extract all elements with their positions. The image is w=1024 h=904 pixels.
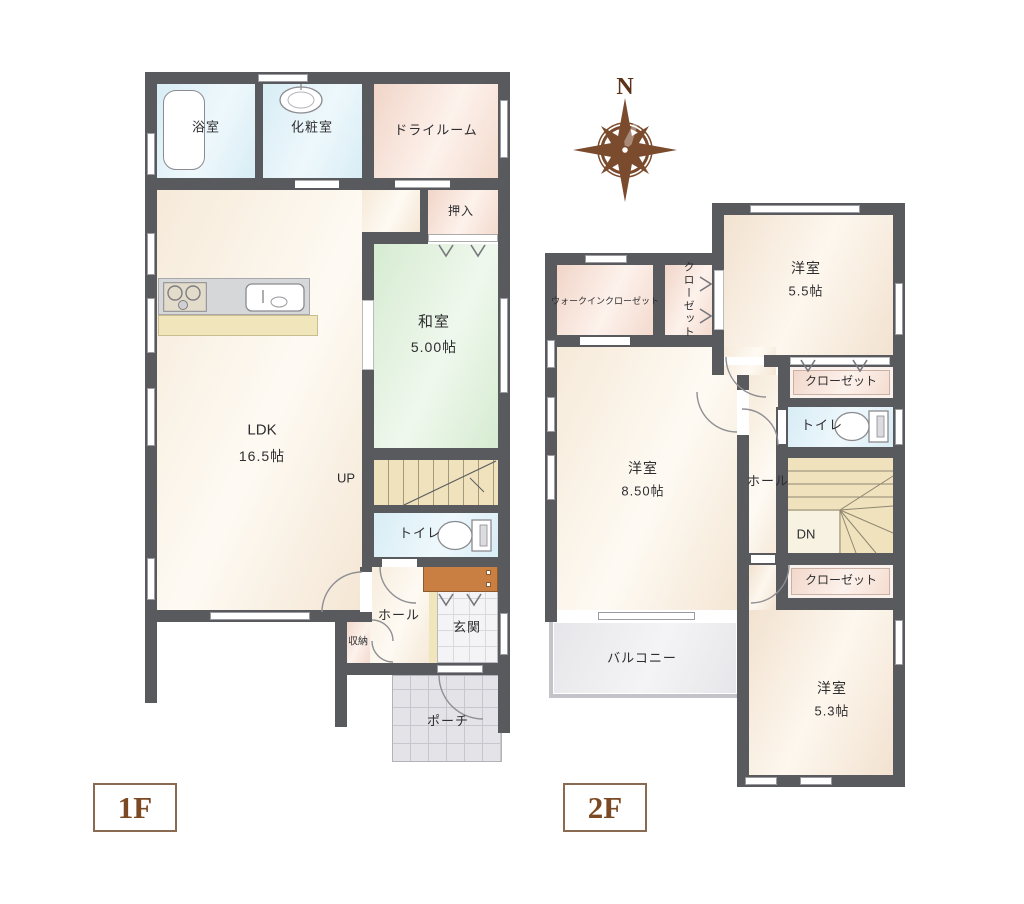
- sliding-door: [395, 180, 450, 188]
- wall-segment: [362, 505, 498, 513]
- room-size-bedroom1: 5.5帖: [788, 284, 823, 301]
- room-bedroom2: [557, 347, 737, 610]
- hanger-icon: [466, 594, 482, 606]
- wall-segment: [157, 178, 374, 190]
- shoji-door: [362, 300, 374, 370]
- window: [147, 558, 155, 600]
- washbasin-icon: [278, 80, 324, 116]
- room-label-ldk: LDK: [247, 420, 276, 440]
- door-arc: [726, 357, 766, 397]
- wall-segment: [776, 458, 788, 553]
- room-label-closet-c: クローゼット: [805, 573, 877, 589]
- cabinet-handle: [486, 582, 491, 587]
- room-label-hall-1f: ホール: [378, 608, 420, 625]
- hanger-icon: [438, 245, 454, 257]
- room-label-closet-b: クローゼット: [805, 374, 877, 390]
- door-arc: [697, 392, 737, 432]
- room-label-hall-2f: ホール: [747, 474, 789, 491]
- room-label-dryroom: ドライルーム: [394, 123, 478, 140]
- balcony-window: [598, 612, 695, 620]
- balcony-label: バルコニー: [607, 651, 677, 668]
- door-arc: [439, 675, 483, 719]
- window: [500, 613, 508, 655]
- room-label-wic: ウォークインクローゼット: [551, 296, 659, 308]
- room-size-ldk: 16.5帖: [239, 447, 285, 465]
- floorplan-canvas: N: [0, 0, 1024, 904]
- wall-segment: [778, 398, 905, 407]
- room-size-bedroom2: 8.50帖: [621, 484, 664, 501]
- window: [800, 777, 832, 785]
- room-label-toilet-1f: トイレ: [399, 526, 441, 543]
- window: [210, 612, 310, 620]
- wall-segment: [255, 84, 263, 178]
- door-arc: [380, 567, 416, 603]
- wall-segment: [776, 598, 905, 610]
- room-label-genkan: 玄関: [453, 620, 481, 637]
- window: [258, 74, 308, 82]
- wall-segment: [545, 253, 724, 265]
- room-label-porch: ポーチ: [427, 714, 469, 731]
- room-ldk-arm: [362, 190, 420, 232]
- window: [585, 255, 627, 263]
- room-label-bedroom1: 洋室: [791, 259, 821, 277]
- cabinet-handle: [486, 570, 491, 575]
- sink-icon: [245, 283, 305, 312]
- window: [750, 205, 860, 213]
- closet-opening: [714, 270, 724, 330]
- toilet-icon-1f: [436, 517, 494, 554]
- room-size-washitsu: 5.00帖: [411, 338, 457, 356]
- room-label-powder: 化粧室: [291, 120, 333, 137]
- wall-segment: [145, 72, 510, 84]
- stove-icon: [163, 282, 207, 312]
- door-opening: [580, 337, 630, 345]
- stairs-up-label: UP: [337, 471, 355, 488]
- window: [147, 388, 155, 446]
- room-label-washitsu: 和室: [418, 312, 450, 332]
- window: [895, 620, 903, 665]
- window: [547, 397, 555, 432]
- door-opening: [751, 555, 775, 563]
- window: [147, 133, 155, 175]
- compass-north-label: N: [616, 74, 634, 100]
- room-ldk: [157, 190, 362, 610]
- wall-segment: [362, 232, 428, 244]
- door-arc: [322, 572, 362, 612]
- hanger-icon: [800, 360, 816, 372]
- floor1-badge: 1F: [93, 783, 177, 832]
- stairs-break-line: [374, 458, 498, 505]
- room-label-toilet-2f: トイレ: [801, 418, 843, 435]
- window: [500, 100, 508, 158]
- entry-door: [437, 665, 483, 673]
- wall-segment: [776, 447, 905, 458]
- window: [147, 298, 155, 353]
- door-arc: [751, 565, 789, 603]
- hanger-icon: [700, 276, 712, 292]
- room-label-bedroom3: 洋室: [817, 679, 847, 697]
- floor2-badge: 2F: [563, 783, 647, 832]
- door-arc: [372, 641, 393, 662]
- hanger-icon: [470, 245, 486, 257]
- oshiire-sliding-door: [428, 234, 498, 242]
- kitchen-counter-front: [158, 315, 318, 336]
- window: [895, 283, 903, 335]
- window: [895, 409, 903, 445]
- door-opening: [778, 410, 786, 444]
- room-label-storage: 収納: [348, 636, 368, 649]
- genkan-step-strip: [429, 592, 437, 663]
- window: [547, 455, 555, 500]
- door-arc: [742, 409, 778, 445]
- hanger-icon: [852, 360, 868, 372]
- room-label-oshiire: 押入: [448, 204, 474, 220]
- window: [745, 777, 777, 785]
- window: [500, 298, 508, 393]
- wall-segment: [545, 253, 557, 622]
- wall-segment: [362, 84, 374, 190]
- door-opening: [382, 559, 417, 567]
- room-label-bedroom2: 洋室: [628, 459, 658, 477]
- window: [147, 233, 155, 275]
- hanger-icon: [438, 594, 454, 606]
- wall-segment: [778, 367, 790, 398]
- hanger-icon: [700, 308, 712, 324]
- room-size-bedroom3: 5.3帖: [814, 704, 849, 721]
- compass-icon: N: [560, 72, 690, 208]
- room-label-closet-a: クローゼット: [681, 261, 695, 339]
- room-label-bath: 浴室: [192, 120, 220, 137]
- stairs-down-label: DN: [797, 527, 816, 544]
- door-opening: [295, 180, 339, 188]
- window: [547, 340, 555, 368]
